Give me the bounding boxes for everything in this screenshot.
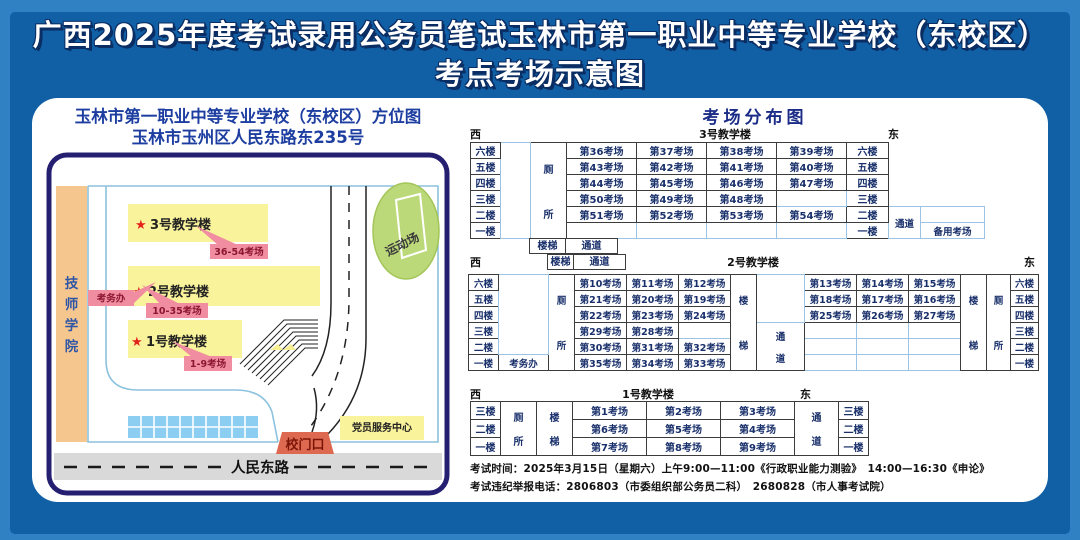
content-panel: 玉林市第一职业中等专业学校（东校区）方位图 玉林市玉州区人民东路东235号 人民…	[32, 98, 1048, 502]
b3-east-label: 东	[888, 126, 899, 142]
empty-cell	[909, 339, 961, 355]
empty-cell	[909, 355, 961, 371]
empty-cell	[501, 143, 531, 239]
floor-label: 四楼	[1011, 307, 1039, 323]
gate-label: 校门口	[285, 437, 324, 453]
floor-label: 六楼	[847, 143, 889, 159]
tech-college-char1: 技	[65, 275, 79, 292]
room-cell: 第11考场	[627, 275, 679, 291]
room-cell: 第27考场	[909, 307, 961, 323]
corridor-char: 道	[776, 351, 786, 365]
b2-title: 2号教学楼	[633, 254, 873, 270]
tech-college-strip	[56, 186, 87, 442]
b3-stairs-passage-row: 楼梯 通道	[530, 238, 618, 254]
building1-label: 1号教学楼	[146, 334, 207, 350]
floor-label: 一楼	[1011, 355, 1039, 371]
room-cell: 第35考场	[575, 355, 627, 371]
toilet-cell: 厕所	[531, 143, 567, 239]
building3-star-icon: ★	[135, 218, 147, 233]
floor-label: 二楼	[471, 420, 501, 438]
room-cell: 第46考场	[707, 175, 777, 191]
map-title-line2: 玉林市玉州区人民东路东235号	[132, 127, 364, 147]
empty-cell	[909, 323, 961, 339]
page-title-line2: 考点考场示意图	[0, 55, 1080, 94]
floor-label: 六楼	[469, 275, 499, 291]
toilet-char: 所	[544, 206, 554, 221]
room-cell: 第22考场	[575, 307, 627, 323]
building1-tag-label: 1-9考场	[190, 358, 227, 370]
room-cell: 第17考场	[857, 291, 909, 307]
empty-cell	[921, 207, 985, 223]
room-cell: 第38考场	[707, 143, 777, 159]
building2-tag-label: 10-35考场	[152, 305, 202, 317]
tech-college-char4: 院	[65, 338, 79, 355]
room-cell: 第9考场	[721, 438, 795, 456]
floor-label: 一楼	[847, 223, 889, 239]
exam-time-note: 考试时间：2025年3月15日（星期六）上午9:00—11:00《行政职业能力测…	[470, 461, 990, 476]
backup-room-cell: 备用考场	[921, 223, 985, 239]
room-cell: 第49考场	[637, 191, 707, 207]
b1-west-label: 西	[470, 386, 481, 402]
stairs-cell: 楼梯	[547, 254, 574, 270]
room-cell: 第7考场	[573, 438, 647, 456]
corridor-char: 通	[812, 409, 822, 424]
floor-label: 三楼	[839, 402, 869, 420]
empty-cell	[707, 223, 777, 239]
empty-cell	[637, 223, 707, 239]
room-cell: 第37考场	[637, 143, 707, 159]
b2-west-label: 西	[470, 254, 481, 270]
floor-label: 二楼	[471, 207, 501, 223]
floor-label: 四楼	[471, 175, 501, 191]
street-label: 人民东路	[231, 459, 289, 477]
stairs-char: 梯	[739, 338, 749, 352]
room-cell: 第45考场	[637, 175, 707, 191]
floor-label: 五楼	[471, 159, 501, 175]
room-cell: 第32考场	[679, 339, 731, 355]
empty-cell	[757, 275, 805, 323]
room-cell: 第12考场	[679, 275, 731, 291]
floor-label: 二楼	[847, 207, 889, 223]
tech-college-char2: 师	[65, 296, 79, 313]
stairs-cell: 楼梯	[731, 275, 757, 371]
corridor-char: 通	[776, 329, 786, 343]
empty-cell	[805, 323, 857, 339]
corridor-cell: 通道	[757, 323, 805, 371]
room-cell: 第51考场	[567, 207, 637, 223]
b2-east-label: 东	[1024, 254, 1035, 270]
room-cell: 第1考场	[573, 402, 647, 420]
building3-table: 六楼 厕所 第36考场 第37考场 第38考场 第39考场 六楼 五楼 第43考…	[470, 142, 985, 239]
toilet-cell: 厕所	[549, 275, 575, 371]
room-cell: 第10考场	[575, 275, 627, 291]
b3-title: 3号教学楼	[605, 126, 845, 142]
floor-label: 二楼	[1011, 339, 1039, 355]
floor-label: 一楼	[839, 438, 869, 456]
building1-star-icon: ★	[131, 335, 143, 350]
toilet-char: 厕	[994, 293, 1004, 307]
building3-tag-label: 36-54考场	[214, 246, 264, 258]
room-cell: 第24考场	[679, 307, 731, 323]
empty-cell	[805, 355, 857, 371]
room-cell: 第4考场	[721, 420, 795, 438]
page-title: 广西2025年度考试录用公务员笔试玉林市第一职业中等专业学校（东校区） 考点考场…	[0, 16, 1080, 94]
corridor-cell: 通道	[795, 402, 839, 456]
room-cell: 第48考场	[707, 191, 777, 207]
floor-label: 四楼	[469, 307, 499, 323]
room-cell: 第36考场	[567, 143, 637, 159]
room-cell: 第19考场	[679, 291, 731, 307]
tech-college-char3: 学	[65, 317, 79, 334]
passage-cell: 通道	[573, 254, 626, 270]
room-cell: 第53考场	[707, 207, 777, 223]
room-cell: 第14考场	[857, 275, 909, 291]
room-cell: 第20考场	[627, 291, 679, 307]
room-cell: 第39考场	[777, 143, 847, 159]
room-cell: 第50考场	[567, 191, 637, 207]
poster: 广西2025年度考试录用公务员笔试玉林市第一职业中等专业学校（东校区） 考点考场…	[0, 0, 1080, 540]
room-cell: 第5考场	[647, 420, 721, 438]
office-tag-label: 考务办	[97, 293, 126, 305]
toilet-char: 厕	[557, 293, 567, 307]
toilet-char: 所	[514, 433, 524, 448]
room-cell: 第18考场	[805, 291, 857, 307]
floor-label: 二楼	[469, 339, 499, 355]
b1-east-label: 东	[800, 386, 811, 402]
toilet-cell: 厕所	[987, 275, 1011, 371]
room-cell: 第33考场	[679, 355, 731, 371]
toilet-char: 所	[557, 338, 567, 352]
stairs-char: 楼	[550, 409, 560, 424]
room-cell: 第47考场	[777, 175, 847, 191]
floor-label: 三楼	[469, 323, 499, 339]
room-cell: 第8考场	[647, 438, 721, 456]
stairs-cell: 楼梯	[537, 402, 573, 456]
room-cell: 第28考场	[627, 323, 679, 339]
corridor-cell: 通道	[889, 207, 921, 239]
toilet-char: 所	[994, 338, 1004, 352]
floor-label: 一楼	[471, 438, 501, 456]
empty-cell	[777, 191, 847, 207]
empty-cell	[857, 323, 909, 339]
empty-cell	[857, 355, 909, 371]
map-title-line1: 玉林市第一职业中等专业学校（东校区）方位图	[75, 106, 422, 126]
room-cell: 第29考场	[575, 323, 627, 339]
toilet-char: 厕	[514, 409, 524, 424]
floor-label: 一楼	[469, 355, 499, 371]
stairs-char: 楼	[739, 293, 749, 307]
room-cell: 第52考场	[637, 207, 707, 223]
floor-label: 四楼	[847, 175, 889, 191]
room-cell: 第42考场	[637, 159, 707, 175]
room-cell: 第3考场	[721, 402, 795, 420]
room-cell: 第25考场	[805, 307, 857, 323]
b1-title: 1号教学楼	[528, 386, 768, 402]
room-cell: 第21考场	[575, 291, 627, 307]
floor-label: 一楼	[471, 223, 501, 239]
room-cell: 第6考场	[573, 420, 647, 438]
campus-map: 玉林市第一职业中等专业学校（东校区）方位图 玉林市玉州区人民东路东235号 人民…	[32, 98, 462, 502]
building2-table: 六楼 厕所 第10考场 第11考场 第12考场 楼梯 第13考场 第14考场 第…	[468, 274, 1039, 371]
empty-cell	[499, 275, 549, 355]
floor-label: 六楼	[1011, 275, 1039, 291]
room-cell: 第43考场	[567, 159, 637, 175]
page-title-line1: 广西2025年度考试录用公务员笔试玉林市第一职业中等专业学校（东校区）	[0, 16, 1080, 55]
distribution-title: 考场分布图	[462, 103, 1048, 128]
floor-label: 三楼	[471, 191, 501, 207]
stairs-char: 梯	[550, 433, 560, 448]
room-cell: 第30考场	[575, 339, 627, 355]
office-cell: 考务办	[499, 355, 549, 371]
b2-stairs-passage-row: 楼梯 通道	[548, 254, 626, 270]
floor-label: 二楼	[839, 420, 869, 438]
room-cell: 第15考场	[909, 275, 961, 291]
b3-west-label: 西	[470, 126, 481, 142]
room-cell: 第40考场	[777, 159, 847, 175]
floor-label: 三楼	[847, 191, 889, 207]
stairs-char: 楼	[969, 293, 979, 307]
floor-label: 六楼	[471, 143, 501, 159]
passage-cell: 通道	[565, 238, 618, 254]
toilet-cell: 厕所	[501, 402, 537, 456]
building1-table: 三楼 厕所 楼梯 第1考场 第2考场 第3考场 通道 三楼 二楼 第6考场 第5…	[470, 401, 869, 456]
empty-cell	[679, 323, 731, 339]
empty-cell	[805, 339, 857, 355]
room-cell: 第2考场	[647, 402, 721, 420]
stairs-char: 梯	[969, 338, 979, 352]
room-cell: 第54考场	[777, 207, 847, 223]
room-cell: 第13考场	[805, 275, 857, 291]
floor-label: 三楼	[1011, 323, 1039, 339]
room-cell: 第16考场	[909, 291, 961, 307]
floor-label: 五楼	[1011, 291, 1039, 307]
room-cell: 第23考场	[627, 307, 679, 323]
room-cell: 第44考场	[567, 175, 637, 191]
room-cell: 第26考场	[857, 307, 909, 323]
corridor-char: 道	[812, 433, 822, 448]
report-phone-note: 考试违纪举报电话：2806803（市委组织部公务员二科） 2680828（市人事…	[470, 479, 891, 494]
empty-cell	[567, 223, 637, 239]
party-center-label: 党员服务中心	[352, 421, 412, 434]
floor-label: 五楼	[847, 159, 889, 175]
distribution-block: 考场分布图 西 3号教学楼 东 六楼 厕所 第36考场 第37考场 第38考场 …	[462, 98, 1048, 502]
stairs-cell: 楼梯	[529, 238, 566, 254]
empty-cell	[777, 223, 847, 239]
room-cell: 第41考场	[707, 159, 777, 175]
empty-cell	[857, 339, 909, 355]
room-cell: 第31考场	[627, 339, 679, 355]
room-cell: 第34考场	[627, 355, 679, 371]
floor-label: 三楼	[471, 402, 501, 420]
floor-label: 五楼	[469, 291, 499, 307]
toilet-char: 厕	[544, 161, 554, 176]
stairs-cell: 楼梯	[961, 275, 987, 371]
